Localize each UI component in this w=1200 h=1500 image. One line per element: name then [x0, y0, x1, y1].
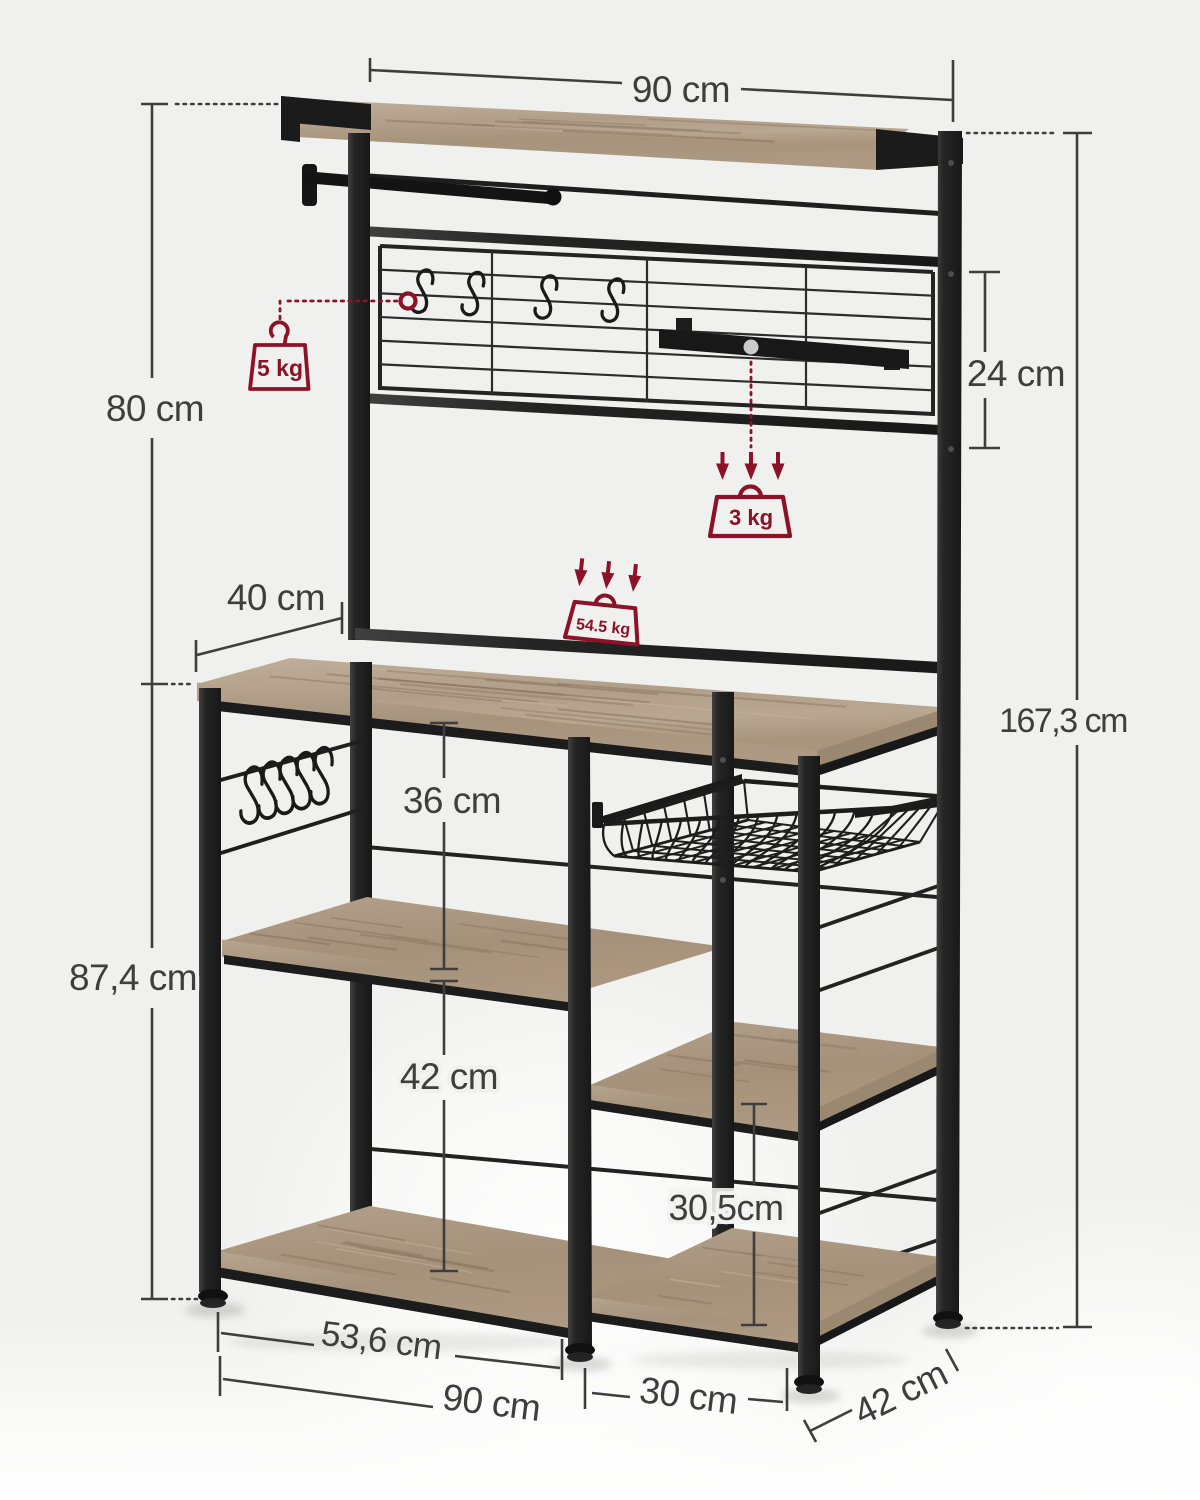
svg-text:30,5cm: 30,5cm	[668, 1187, 783, 1228]
svg-text:5 kg: 5 kg	[257, 355, 303, 381]
svg-text:24 cm: 24 cm	[967, 353, 1065, 394]
svg-text:36 cm: 36 cm	[403, 780, 501, 821]
svg-text:167,3 cm: 167,3 cm	[999, 702, 1127, 740]
svg-text:40 cm: 40 cm	[227, 577, 325, 618]
svg-text:80 cm: 80 cm	[106, 388, 204, 429]
svg-text:3 kg: 3 kg	[729, 505, 773, 530]
svg-text:90 cm: 90 cm	[632, 69, 730, 110]
svg-text:87,4 cm: 87,4 cm	[69, 957, 197, 998]
svg-text:42 cm: 42 cm	[400, 1056, 498, 1097]
